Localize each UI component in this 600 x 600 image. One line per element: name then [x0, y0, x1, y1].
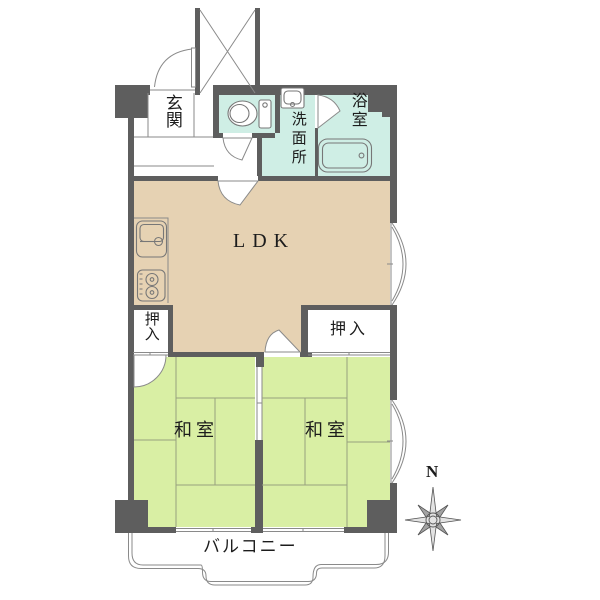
top-wall-right — [213, 85, 397, 95]
bathroom-label: 浴室 — [348, 92, 365, 130]
toilet-door — [223, 138, 252, 160]
closet-left-wall-right — [168, 305, 173, 353]
floor-plan-drawing — [0, 0, 600, 600]
washitsu-left-label: 和室 — [174, 421, 218, 440]
toilet-wall-bottom-a — [213, 133, 223, 138]
top-wall-left — [115, 85, 150, 95]
mid-wall-left — [128, 176, 218, 181]
balcony-label: バルコニー — [203, 538, 298, 556]
bath-divider-top — [315, 87, 318, 95]
right-wall-a — [390, 117, 397, 223]
washitsu-right-label: 和室 — [305, 421, 349, 440]
divider-nub — [256, 352, 264, 367]
floor-plan: 玄関 洗面所 浴室 LDK 押入 押入 和室 和室 バルコニー N — [0, 0, 600, 600]
bathroom-pillar — [368, 95, 390, 112]
ldk-opening — [218, 176, 258, 181]
shaft-x — [200, 10, 255, 93]
toilet-opening — [223, 133, 252, 138]
mid-wall-right — [258, 176, 397, 181]
bottom-wall-a — [148, 527, 176, 533]
pillar-bottom-left — [115, 500, 148, 533]
washitsu-opening — [264, 352, 300, 357]
closet-right-wall-left — [301, 305, 308, 353]
closet-left-label: 押入 — [142, 311, 158, 341]
washitsu-left-floor — [134, 357, 255, 527]
bath-divider-bottom — [315, 128, 318, 176]
closet-right-wall-top — [301, 305, 397, 310]
entrance-door-leaf — [192, 48, 196, 87]
closet-right-label: 押入 — [330, 322, 368, 339]
right-wall-c — [390, 483, 397, 533]
washitsu-divider-fusuma — [257, 367, 262, 440]
toilet-wall-left — [213, 87, 219, 138]
compass-rose-icon — [405, 487, 461, 551]
washroom-wall-left — [257, 133, 262, 176]
entrance-door-arc — [155, 49, 193, 87]
washitsu-top-wall-left — [168, 352, 256, 357]
compass-cardinal-points — [405, 487, 461, 551]
ldk-label: LDK — [233, 231, 295, 252]
right-wall-b — [390, 305, 397, 400]
window-bottom-left — [176, 529, 251, 532]
window-bottom-right — [263, 529, 344, 532]
bottom-wall-b — [251, 527, 263, 533]
toilet-tank-icon — [259, 100, 271, 128]
washroom-label: 洗面所 — [289, 111, 305, 168]
compass-north-label: N — [426, 463, 438, 481]
toilet-wall-bottom-b — [252, 133, 275, 138]
toilet-wall-right — [275, 87, 280, 133]
closet-right-fusuma — [308, 353, 390, 356]
genkan-label: 玄関 — [163, 94, 181, 128]
washitsu-divider-wall — [255, 440, 263, 527]
shaft-wall-right — [255, 8, 260, 95]
closet-left-wall-top — [128, 305, 173, 310]
